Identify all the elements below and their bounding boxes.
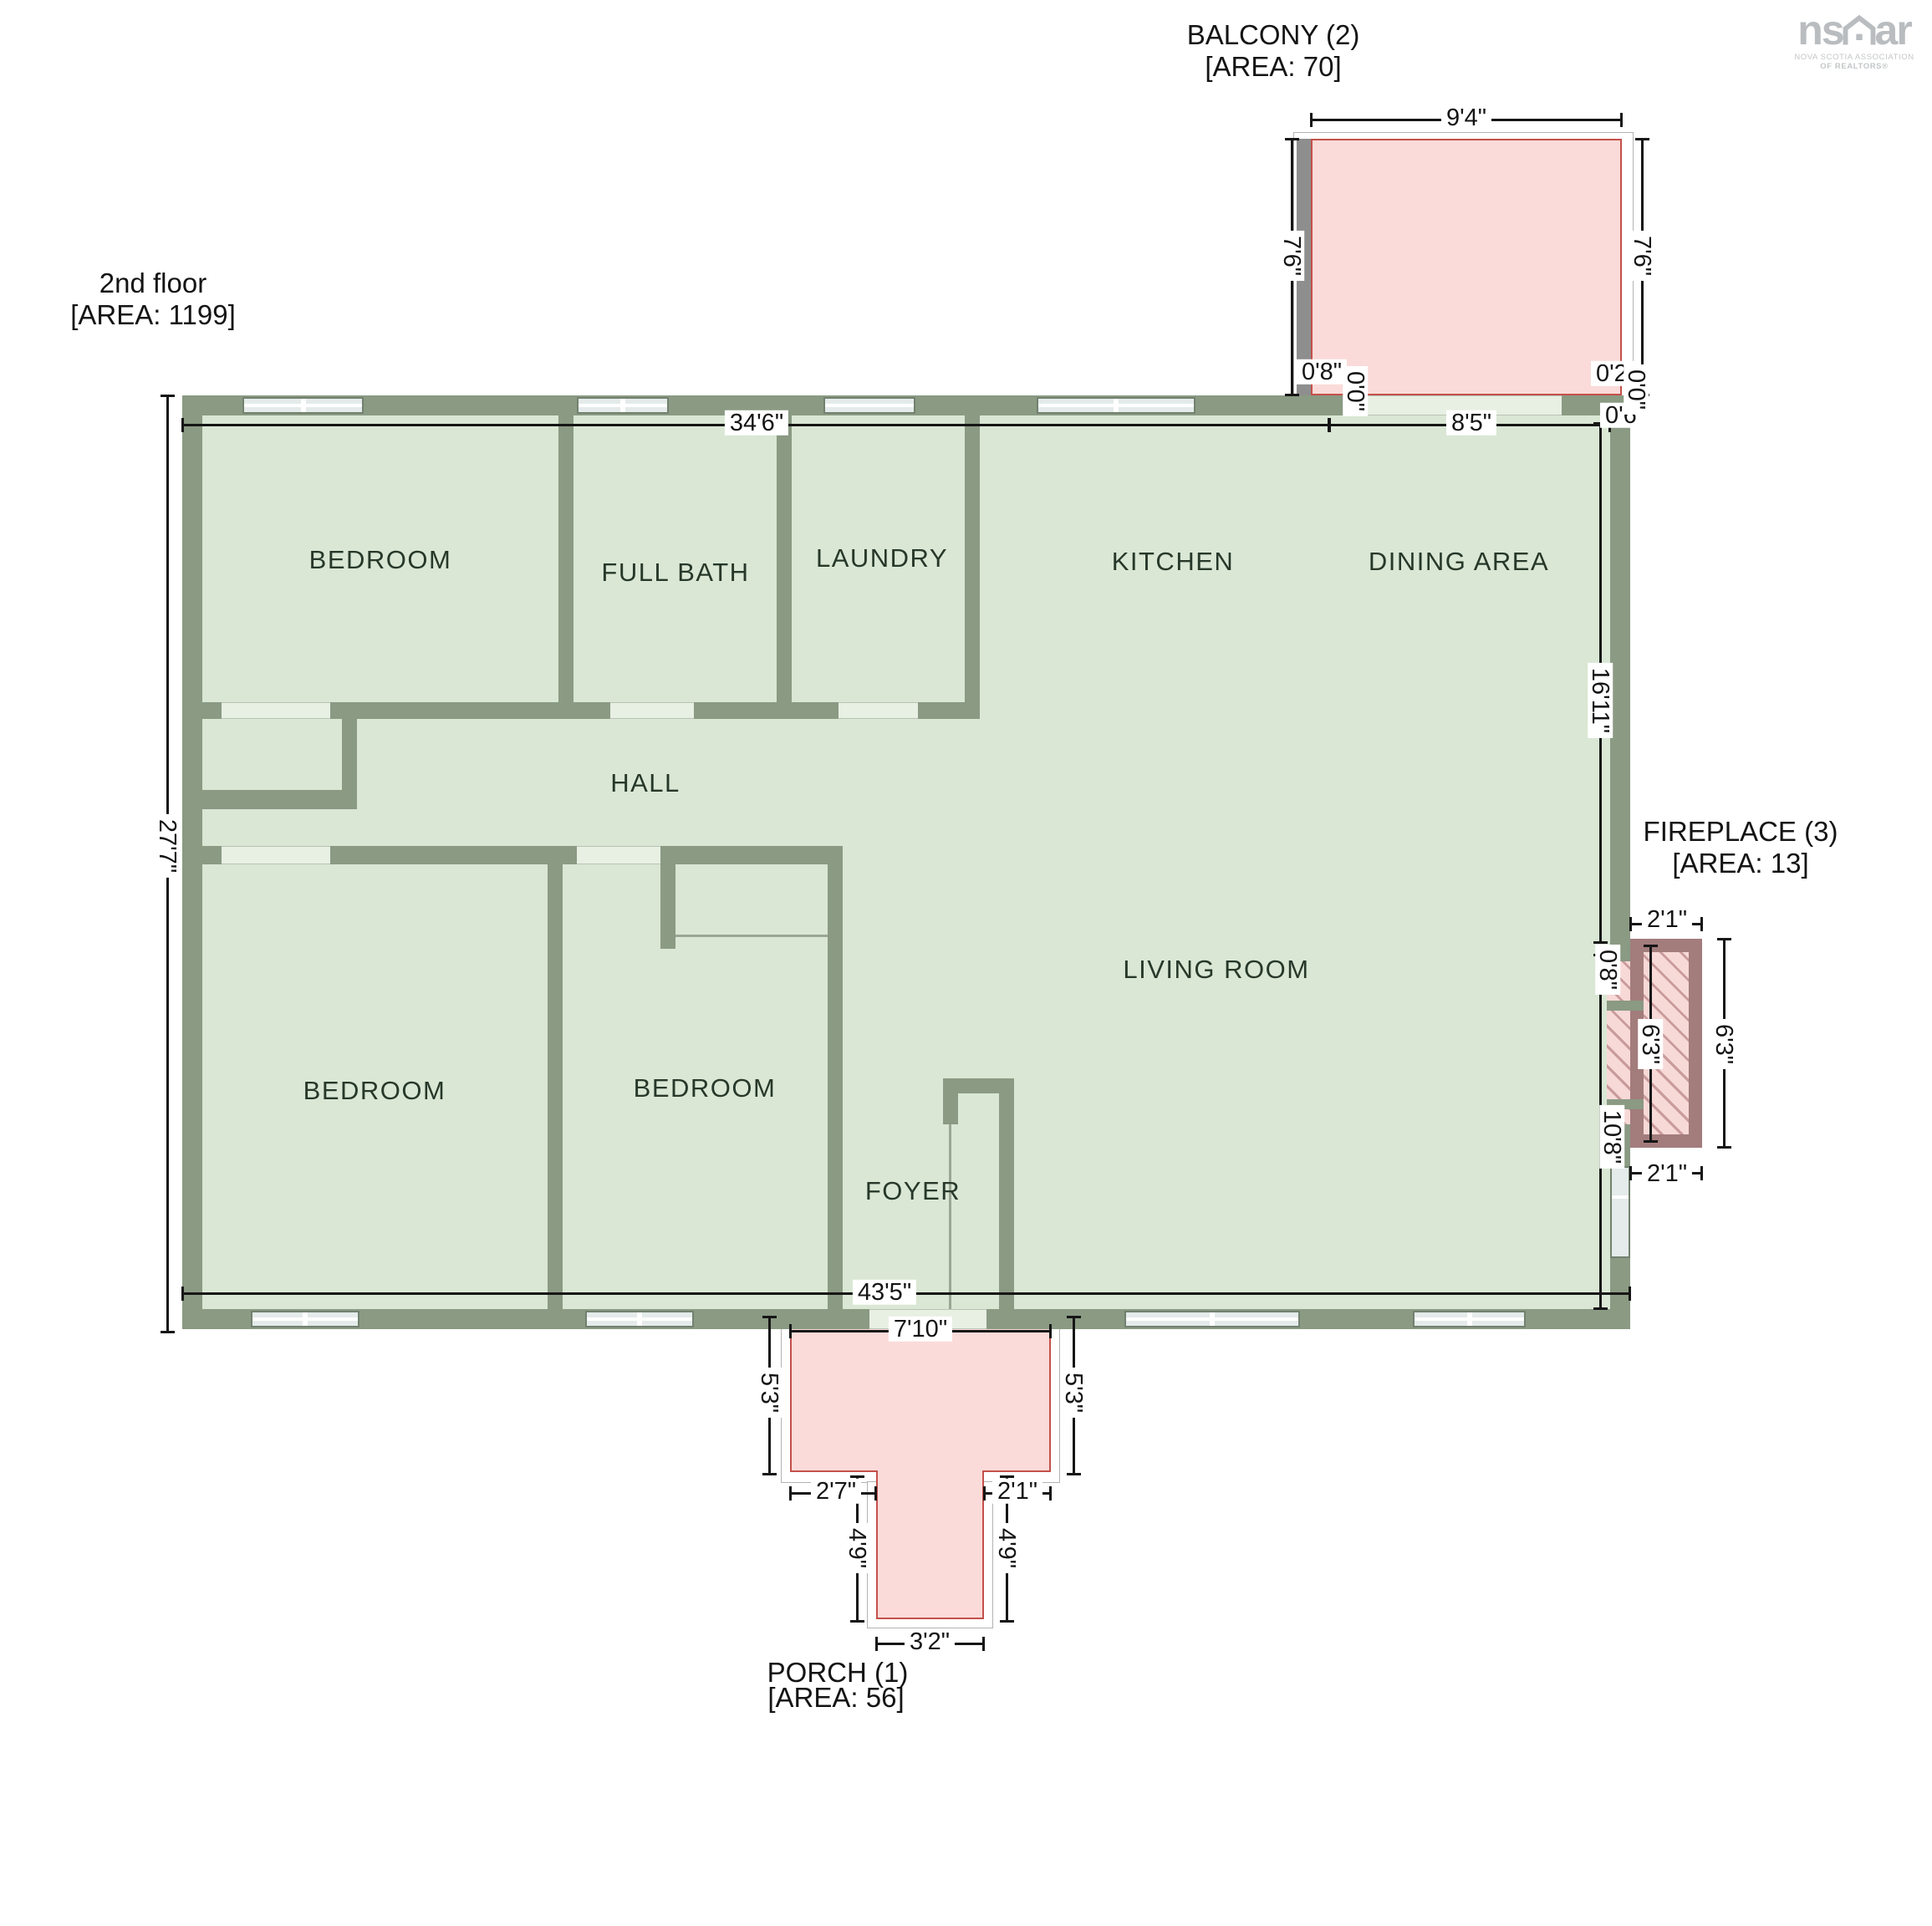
dimension-label: 7'6" xyxy=(1279,231,1304,281)
dimension-tick xyxy=(161,395,175,397)
floorplan-canvas: ns ar NOVA SCOTIA ASSOCIATION OF REALTOR… xyxy=(0,0,1932,1926)
dimension-label: 5'3" xyxy=(1061,1368,1086,1418)
door-opening-bedroom-top xyxy=(222,702,330,719)
dimension-label: 0'0" xyxy=(1624,364,1649,415)
window xyxy=(251,1311,359,1327)
dimension-label: 43'5" xyxy=(853,1280,916,1305)
dimension-tick xyxy=(1644,945,1658,947)
window xyxy=(585,1311,694,1327)
house-icon xyxy=(1841,14,1878,48)
dimension-tick xyxy=(1629,1287,1631,1301)
closet-door-line xyxy=(675,935,828,937)
area-title: 2nd floor xyxy=(99,267,206,299)
logo-caption-2: OF REALTORS® xyxy=(1779,62,1929,71)
foyer-door-line xyxy=(949,1124,951,1309)
dimension-label: 2'1" xyxy=(1642,907,1692,932)
room-label: FOYER xyxy=(865,1176,961,1206)
dimension-label: 8'5" xyxy=(1446,410,1496,436)
dimension-label: 4'9" xyxy=(844,1523,869,1573)
door-opening-fullbath xyxy=(610,702,694,719)
dimension-tick xyxy=(1620,113,1623,127)
window xyxy=(1413,1311,1526,1327)
dimension-label: 27'7" xyxy=(155,814,180,878)
dimension-label: 7'10" xyxy=(889,1317,952,1342)
wall-foyer-stub xyxy=(943,1078,958,1124)
wall-closet2-left xyxy=(660,864,675,949)
dimension-tick xyxy=(762,1316,777,1318)
window xyxy=(1610,1166,1630,1258)
dimension-tick xyxy=(1700,1166,1703,1180)
dimension-tick xyxy=(874,1486,877,1501)
porch-deck-wide xyxy=(790,1327,1051,1472)
window xyxy=(1124,1311,1300,1327)
room-label: KITCHEN xyxy=(1112,547,1235,577)
dimension-label: 34'6" xyxy=(725,410,788,436)
wall-bedrooms-partition xyxy=(548,846,563,1309)
dimension-tick xyxy=(762,1473,777,1475)
logo-text-ns: ns xyxy=(1797,12,1843,49)
room-label: LIVING ROOM xyxy=(1123,955,1309,985)
area-title: BALCONY (2) xyxy=(1187,19,1360,51)
dimension-label: 9'4" xyxy=(1441,105,1491,130)
window xyxy=(577,397,669,414)
room-label: HALL xyxy=(610,768,681,798)
logo-text-ar: ar xyxy=(1875,12,1911,49)
area-title: FIREPLACE (3) xyxy=(1644,816,1838,848)
dimension-tick xyxy=(875,1637,878,1651)
dimension-label: 16'11" xyxy=(1588,663,1613,738)
dimension-tick xyxy=(1717,938,1731,940)
dimension-tick xyxy=(1700,917,1703,931)
wall-foyer-vert xyxy=(999,1078,1014,1309)
wall-bedroom-foyer xyxy=(828,864,843,1309)
balcony-deck xyxy=(1311,139,1622,395)
wall-fullbath-laundry xyxy=(777,415,792,719)
dimension-label: 6'3" xyxy=(1711,1019,1736,1069)
room-label: BEDROOM xyxy=(303,1076,446,1106)
area-title: [AREA: 70] xyxy=(1205,51,1341,83)
nsar-logo: ns ar NOVA SCOTIA ASSOCIATION OF REALTOR… xyxy=(1779,12,1929,71)
dimension-tick xyxy=(1593,941,1608,944)
dimension-tick xyxy=(789,1486,792,1501)
area-title: [AREA: 56] xyxy=(767,1682,904,1714)
door-opening-laundry xyxy=(839,702,918,719)
dimension-label: 2'1" xyxy=(992,1479,1042,1504)
room-label: LAUNDRY xyxy=(816,543,948,573)
dimension-tick xyxy=(1328,418,1331,432)
dimension-label: 3'2" xyxy=(905,1629,955,1654)
area-title: [AREA: 1199] xyxy=(70,299,236,331)
dimension-tick xyxy=(161,1331,175,1333)
dimension-tick xyxy=(1717,1146,1731,1149)
room-label: FULL BATH xyxy=(601,558,749,588)
dimension-tick xyxy=(1629,917,1632,931)
logo-wordmark: ns ar xyxy=(1779,12,1929,49)
dimension-tick xyxy=(1049,1324,1052,1338)
wall-closet-left-horiz xyxy=(202,790,357,809)
dimension-tick xyxy=(982,1637,985,1651)
logo-caption-1: NOVA SCOTIA ASSOCIATION xyxy=(1779,53,1929,62)
dimension-tick xyxy=(1593,1307,1608,1310)
door-opening-bedroom-mid xyxy=(577,846,660,864)
dimension-tick xyxy=(1067,1316,1081,1318)
dimension-tick xyxy=(181,1287,184,1301)
dimension-label: 10'8" xyxy=(1599,1105,1624,1169)
window xyxy=(823,397,915,414)
area-title: [AREA: 13] xyxy=(1672,848,1808,879)
wall-laundry-kitchen xyxy=(965,415,980,719)
dimension-label: 0'0" xyxy=(1343,366,1368,416)
dimension-label: 0'8" xyxy=(1595,945,1620,995)
dimension-tick xyxy=(1067,1473,1081,1475)
dimension-label: 6'3" xyxy=(1638,1019,1663,1069)
fireplace-stub-top xyxy=(1607,1001,1644,1011)
dimension-tick xyxy=(789,1324,792,1338)
window xyxy=(242,397,364,414)
dimension-tick xyxy=(850,1620,864,1623)
wall-bedroom-fullbath xyxy=(558,415,573,706)
dimension-tick xyxy=(1285,138,1299,140)
dimension-label: 0'8" xyxy=(1297,359,1347,385)
dimension-tick xyxy=(1049,1486,1052,1501)
dimension-tick xyxy=(1310,113,1313,127)
room-label: BEDROOM xyxy=(309,545,452,575)
dimension-tick xyxy=(1285,394,1299,396)
dimension-tick xyxy=(181,418,184,432)
dimension-label: 7'6" xyxy=(1629,231,1654,281)
dimension-label: 5'3" xyxy=(757,1368,782,1418)
dimension-tick xyxy=(983,1486,986,1501)
dimension-tick xyxy=(1000,1620,1014,1623)
dimension-tick xyxy=(1644,1140,1658,1143)
window xyxy=(1037,397,1195,414)
door-opening-bedroom-left xyxy=(222,846,330,864)
porch-deck-stem xyxy=(876,1470,984,1619)
dimension-tick xyxy=(1635,138,1649,140)
dimension-label: 2'7" xyxy=(811,1479,861,1504)
dimension-label: 4'9" xyxy=(994,1523,1019,1573)
dimension-label: 2'1" xyxy=(1642,1161,1692,1186)
room-label: BEDROOM xyxy=(634,1073,777,1103)
room-label: DINING AREA xyxy=(1369,547,1549,577)
dimension-tick xyxy=(1629,1166,1632,1180)
